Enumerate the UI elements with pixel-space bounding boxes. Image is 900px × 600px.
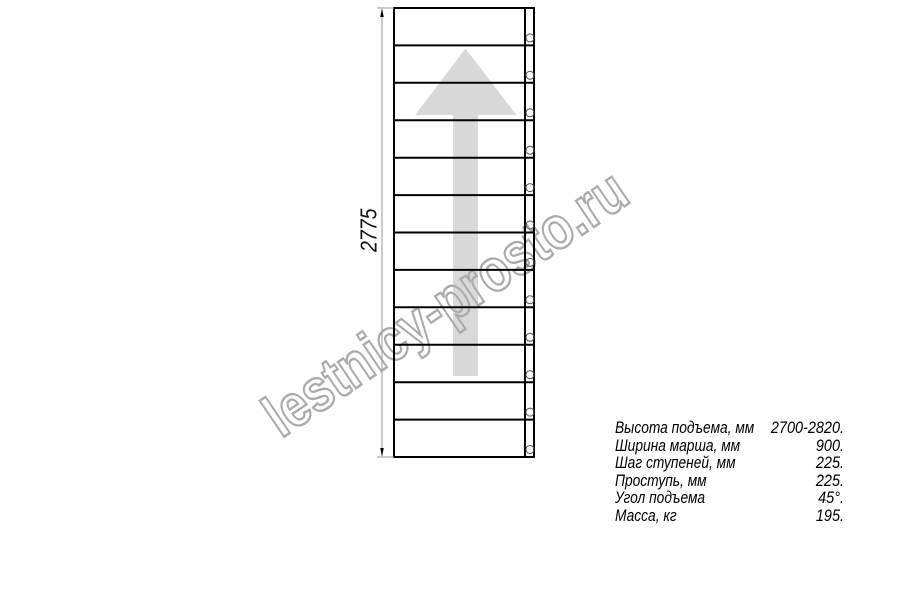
- svg-text:2775: 2775: [356, 208, 382, 253]
- svg-text:lestnicy-prosto.ru: lestnicy-prosto.ru: [251, 156, 640, 449]
